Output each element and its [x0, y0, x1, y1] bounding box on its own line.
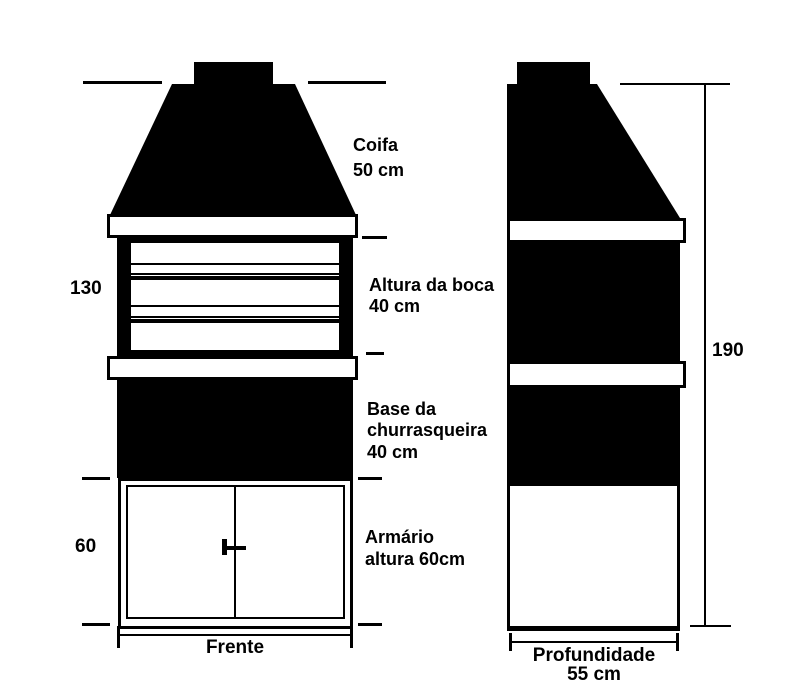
cabinet-height-label: 60 — [75, 537, 96, 558]
annotation-coifa-line2: 50 cm — [353, 161, 404, 181]
extension-tick — [362, 236, 387, 239]
grill-grate-line — [131, 263, 339, 265]
cabinet-door-divider — [234, 485, 236, 619]
side-chimney-cap — [517, 62, 590, 85]
annotation-boca-line1: Altura da boca — [369, 276, 494, 296]
side-base-block — [507, 388, 680, 484]
front-mantel-shelf — [107, 214, 358, 238]
front-firebox-lintel — [117, 238, 353, 243]
extension-tick — [82, 477, 110, 480]
total-height-dimension-line — [704, 84, 706, 627]
grill-grate-line — [131, 316, 339, 318]
side-hood — [507, 84, 680, 218]
annotation-armario-line2: altura 60cm — [365, 550, 465, 570]
extension-tick — [358, 477, 382, 480]
technical-drawing: Frente Profundidade 55 cm 190 130 60 Coi… — [0, 0, 800, 691]
depth-value-label: 55 cm — [510, 665, 678, 686]
front-width-label: Frente — [118, 638, 352, 659]
grill-grate-line — [131, 276, 339, 280]
front-hood — [110, 84, 356, 215]
grill-grate-line — [131, 273, 339, 275]
total-height-label: 190 — [712, 341, 744, 362]
annotation-base-line1: Base da — [367, 400, 436, 420]
annotation-base-line3: 40 cm — [367, 443, 418, 463]
extension-tick — [308, 81, 386, 84]
extension-tick — [366, 352, 384, 355]
extension-tick — [83, 81, 162, 84]
front-base-block — [117, 380, 353, 478]
front-right-post — [339, 238, 353, 356]
extension-tick — [82, 623, 110, 626]
firebox-height-label: 130 — [70, 279, 102, 300]
annotation-base-line2: churrasqueira — [367, 421, 487, 441]
extension-tick — [358, 623, 382, 626]
dimension-end-tick — [690, 625, 731, 627]
grill-grate-line — [131, 305, 339, 307]
front-left-post — [117, 238, 131, 356]
annotation-armario-line1: Armário — [365, 528, 434, 548]
dimension-end-tick — [620, 83, 730, 85]
grill-grate-line — [131, 319, 339, 323]
annotation-coifa-line1: Coifa — [353, 136, 398, 156]
depth-dimension-line — [510, 641, 678, 643]
front-width-dimension-line — [118, 634, 352, 636]
side-cabinet-block — [507, 483, 680, 631]
side-mantel-shelf — [507, 218, 686, 243]
cabinet-handle-bar — [227, 546, 246, 550]
side-lower-shelf — [507, 361, 686, 388]
side-firebox-block — [507, 243, 680, 362]
front-chimney-cap — [194, 62, 273, 85]
front-lower-shelf — [107, 356, 358, 380]
annotation-boca-line2: 40 cm — [369, 297, 420, 317]
